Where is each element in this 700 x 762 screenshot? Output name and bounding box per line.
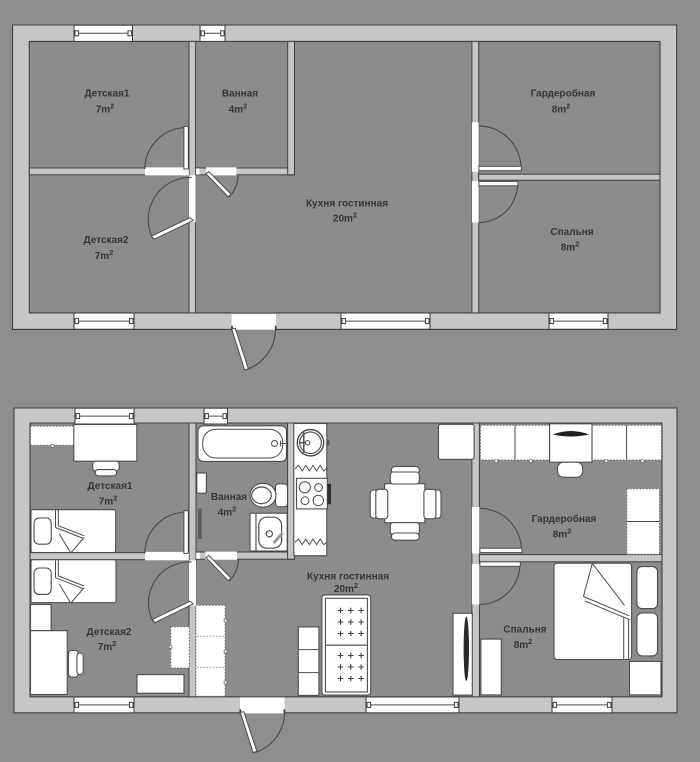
- svg-text:Ванная: Ванная: [211, 492, 247, 503]
- svg-text:Кухня гостинная: Кухня гостинная: [307, 572, 389, 583]
- svg-text:Детская1: Детская1: [88, 481, 133, 492]
- svg-text:Спальня: Спальня: [503, 625, 546, 636]
- svg-text:Гардеробная: Гардеробная: [532, 513, 597, 525]
- svg-text:Кухня гостинная: Кухня гостинная: [306, 199, 388, 210]
- svg-text:Гардеробная: Гардеробная: [531, 88, 596, 100]
- svg-text:Ванная: Ванная: [222, 89, 258, 100]
- svg-text:Детская1: Детская1: [85, 89, 130, 100]
- svg-text:Спальня: Спальня: [550, 227, 593, 238]
- svg-text:Детская2: Детская2: [87, 627, 132, 638]
- svg-text:Детская2: Детская2: [84, 235, 129, 246]
